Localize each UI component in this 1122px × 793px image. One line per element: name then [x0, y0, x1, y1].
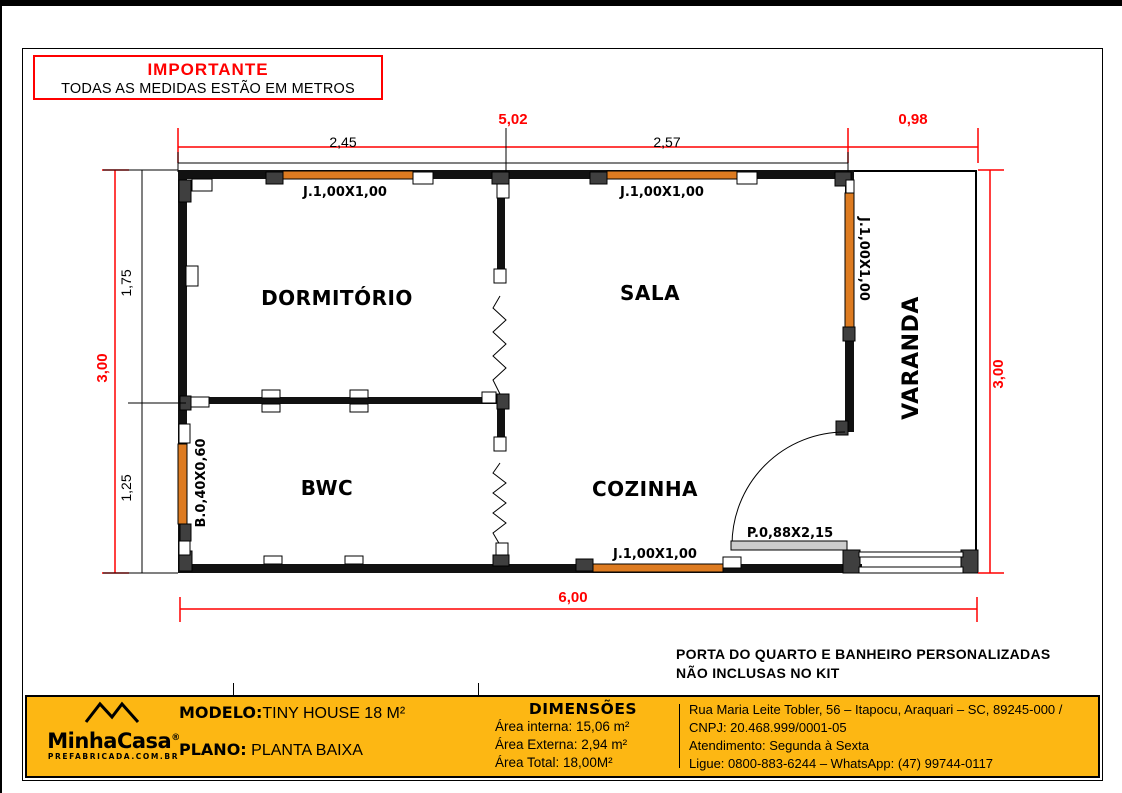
room-label-cozinha: COZINHA — [592, 477, 698, 501]
area-externa: Área Externa: 2,94 m² — [495, 736, 677, 754]
dim-dorm-width: 2,45 — [329, 134, 356, 150]
label-kitchen-window: J.1,00X1,00 — [612, 547, 697, 562]
model-value: TINY HOUSE 18 M² — [262, 705, 405, 722]
area-total: Área Total: 18,00M² — [495, 754, 677, 772]
dim-height-left: 3,00 — [94, 353, 111, 382]
area-interna: Área interna: 15,06 m² — [495, 718, 677, 736]
contact-section: Rua Maria Leite Tobler, 56 – Itapocu, Ar… — [689, 701, 1089, 773]
dim-bwc-depth: 1,25 — [118, 474, 134, 501]
contact-hours: Atendimento: Segunda à Sexta — [689, 737, 1089, 755]
plan-value: PLANTA BAIXA — [247, 742, 363, 759]
dimensions-title: DIMENSÕES — [489, 700, 677, 718]
room-label-sala: SALA — [620, 281, 680, 305]
red-dimension-lines — [102, 128, 1004, 622]
contact-address: Rua Maria Leite Tobler, 56 – Itapocu, Ar… — [689, 701, 1089, 737]
dim-height-right: 3,00 — [990, 359, 1007, 388]
bwc-window — [178, 444, 187, 524]
floor-plan-drawing: 5,02 0,98 2,45 2,57 3,00 1,75 1,25 3,00 … — [0, 0, 1122, 690]
kitchen-window — [593, 564, 723, 572]
room-label-varanda: VARANDA — [899, 296, 924, 420]
room-label-bwc: BWC — [301, 476, 353, 500]
door-leaf — [731, 541, 847, 550]
roof-icon — [82, 701, 146, 723]
dim-varanda-width: 0,98 — [898, 111, 927, 128]
floor-plan-sheet: IMPORTANTE TODAS AS MEDIDAS ESTÃO EM MET… — [0, 0, 1122, 793]
room-label-dormitorio: DORMITÓRIO — [261, 286, 413, 310]
plan-label: PLANO: — [179, 740, 247, 759]
windows — [178, 171, 854, 572]
logo-brand: MinhaCasa® — [41, 728, 186, 751]
label-entry-door: P.0,88X2,15 — [747, 526, 833, 541]
titleblock-tick-2 — [478, 683, 479, 695]
model-row: MODELO:TINY HOUSE 18 M² — [179, 703, 469, 723]
model-plan-section: MODELO:TINY HOUSE 18 M² PLANO: PLANTA BA… — [179, 703, 469, 777]
varanda-top-edge — [854, 170, 977, 172]
model-label: MODELO: — [179, 703, 262, 722]
footer-divider — [679, 704, 680, 768]
label-sala-side-window: J.1,00X1,00 — [856, 216, 871, 301]
logo-brand-text: MinhaCasa — [47, 729, 171, 753]
kit-note-line2: NÃO INCLUSAS NO KIT — [676, 664, 1051, 683]
varanda-right-edge — [975, 170, 977, 573]
dimensions-section: DIMENSÕES Área interna: 15,06 m² Área Ex… — [489, 700, 677, 772]
dim-bottom-width: 6,00 — [558, 589, 587, 606]
label-dorm-window: J.1,00X1,00 — [302, 185, 387, 200]
dim-dorm-depth: 1,75 — [118, 269, 134, 296]
varanda-step — [859, 552, 963, 573]
title-block: MinhaCasa® PREFABRICADA.COM.BR MODELO:TI… — [25, 695, 1100, 778]
label-bwc-window: B.0,40X0,60 — [194, 438, 209, 527]
dormitorio-window — [283, 171, 413, 179]
titleblock-tick-1 — [233, 683, 234, 695]
contact-phone: Ligue: 0800-883-6244 – WhatsApp: (47) 99… — [689, 755, 1089, 773]
dim-total-width: 5,02 — [498, 111, 527, 128]
plan-row: PLANO: PLANTA BAIXA — [179, 740, 469, 760]
sala-side-window — [845, 193, 854, 327]
sala-top-window — [607, 171, 737, 179]
door-opening-break-dormitorio — [493, 296, 506, 394]
wall-studs — [179, 172, 854, 568]
logo-tagline: PREFABRICADA.COM.BR — [41, 752, 186, 761]
dim-sala-width: 2,57 — [653, 134, 680, 150]
black-dimension-lines — [103, 128, 848, 573]
company-logo: MinhaCasa® PREFABRICADA.COM.BR — [41, 701, 186, 761]
kit-note-line1: PORTA DO QUARTO E BANHEIRO PERSONALIZADA… — [676, 645, 1051, 664]
kit-note: PORTA DO QUARTO E BANHEIRO PERSONALIZADA… — [676, 645, 1051, 683]
label-sala-top-window: J.1,00X1,00 — [619, 185, 704, 200]
door-opening-break-bwc — [493, 463, 506, 545]
